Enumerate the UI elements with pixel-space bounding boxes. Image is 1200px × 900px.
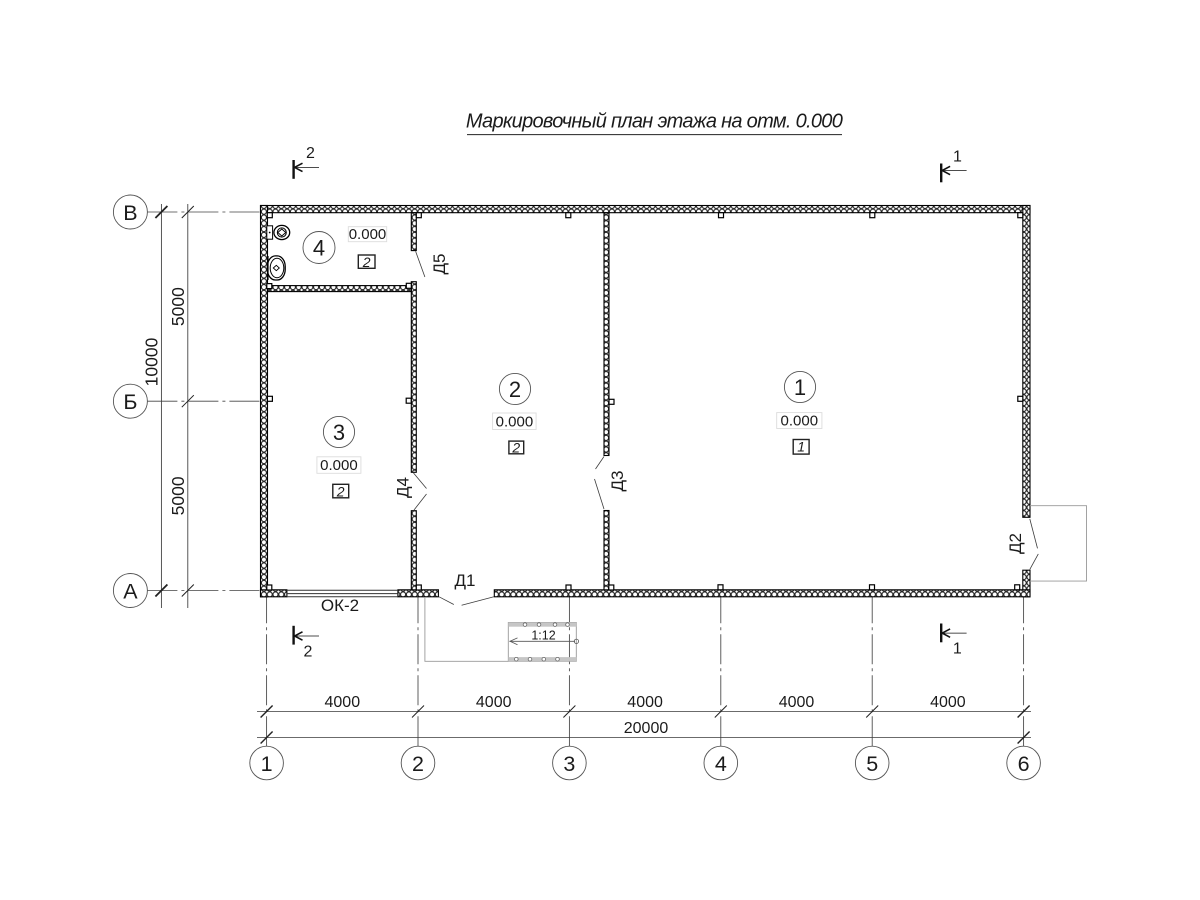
svg-text:5000: 5000 (168, 287, 188, 326)
svg-text:2: 2 (412, 752, 424, 776)
svg-text:6: 6 (1018, 752, 1030, 776)
svg-text:В: В (123, 201, 137, 225)
svg-text:2: 2 (336, 483, 345, 499)
svg-text:Д4: Д4 (394, 477, 413, 498)
svg-text:Д1: Д1 (455, 571, 476, 590)
svg-text:Д5: Д5 (430, 254, 449, 275)
svg-text:3: 3 (333, 420, 345, 445)
svg-text:1: 1 (794, 375, 806, 400)
svg-text:5000: 5000 (168, 476, 188, 515)
svg-text:Д2: Д2 (1006, 533, 1025, 554)
svg-text:0.000: 0.000 (496, 413, 534, 430)
svg-text:4000: 4000 (627, 694, 663, 711)
svg-text:1: 1 (797, 439, 805, 455)
svg-text:2: 2 (509, 377, 521, 402)
svg-text:ОК-2: ОК-2 (321, 596, 359, 615)
svg-text:1: 1 (261, 752, 273, 776)
svg-text:5: 5 (866, 752, 878, 776)
svg-text:2: 2 (511, 440, 520, 456)
svg-text:0.000: 0.000 (320, 457, 358, 474)
svg-text:4: 4 (313, 236, 325, 261)
svg-text:20000: 20000 (624, 720, 669, 737)
svg-text:2: 2 (362, 254, 371, 270)
svg-text:Б: Б (123, 390, 137, 414)
svg-text:1: 1 (953, 149, 962, 166)
svg-text:10000: 10000 (142, 337, 162, 386)
svg-text:0.000: 0.000 (781, 413, 819, 430)
svg-text:2: 2 (304, 644, 313, 661)
svg-text:Д3: Д3 (608, 471, 627, 492)
svg-text:3: 3 (563, 752, 575, 776)
svg-text:4000: 4000 (779, 694, 815, 711)
svg-text:4000: 4000 (930, 694, 966, 711)
svg-text:1:12: 1:12 (531, 629, 555, 643)
svg-text:А: А (123, 579, 138, 603)
svg-text:4: 4 (715, 752, 727, 776)
svg-text:1: 1 (953, 641, 962, 658)
svg-text:4000: 4000 (325, 694, 361, 711)
svg-text:2: 2 (306, 145, 315, 162)
svg-text:0.000: 0.000 (349, 226, 387, 243)
svg-text:4000: 4000 (476, 694, 512, 711)
svg-text:Маркировочный план этажа на от: Маркировочный план этажа на отм. 0.000 (466, 111, 843, 133)
